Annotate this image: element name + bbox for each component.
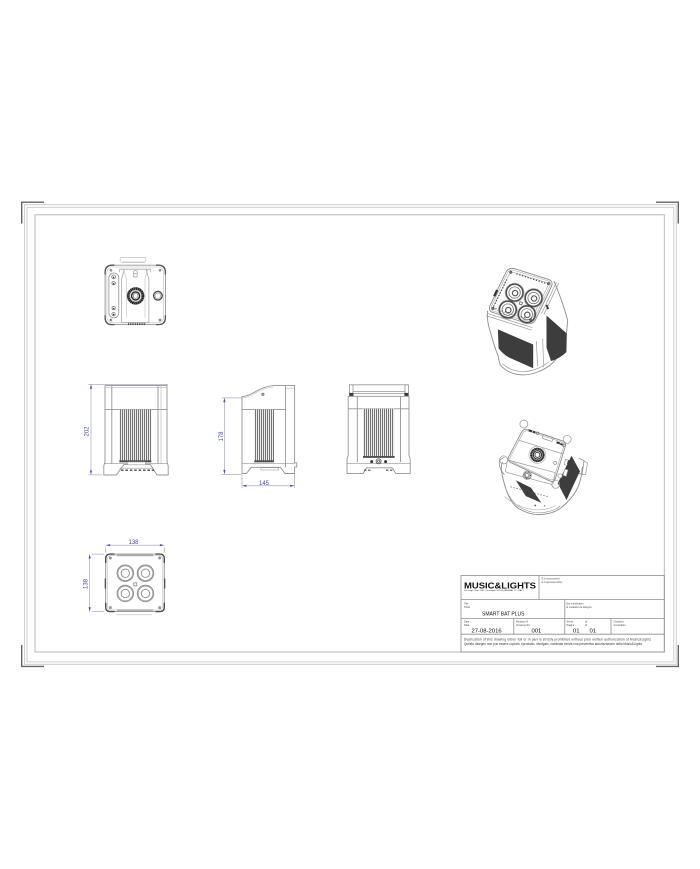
svg-text:138: 138 [128,540,139,546]
svg-text:27-08-2016: 27-08-2016 [472,629,503,635]
svg-text:01: 01 [573,629,580,635]
svg-text:Pagina: Pagina [567,624,575,627]
svg-text:Data: Data [464,624,470,627]
svg-text:178: 178 [219,431,225,442]
svg-text:Questo disegno non può essere: Questo disegno non può essere copiato, r… [464,642,642,646]
svg-text:MUSIC&LIGHTS: MUSIC&LIGHTS [464,581,536,590]
svg-text:202: 202 [85,426,91,437]
svg-text:Versione N0: Versione N0 [516,624,530,627]
svg-text:di: di [585,624,587,627]
svg-text:Controllato: Controllato [614,624,627,627]
svg-text:È di mia proprietà: È di mia proprietà [542,578,561,581]
svg-text:001: 001 [532,629,542,635]
svg-text:È sostituito da disegno: È sostituito da disegno [567,606,593,609]
svg-text:01: 01 [590,629,597,635]
svg-text:138: 138 [83,578,89,589]
svg-text:Titolo: Titolo [464,606,471,609]
svg-text:Via Degli Olmi 1100 - Gairopol: Via Degli Olmi 1100 - Gairopoli 04100 (M… [464,589,525,592]
svg-text:SMART BAT PLUS: SMART BAT PLUS [482,611,525,617]
svg-text:È di apposita polizia: È di apposita polizia [542,581,563,584]
svg-text:145: 145 [259,481,270,487]
